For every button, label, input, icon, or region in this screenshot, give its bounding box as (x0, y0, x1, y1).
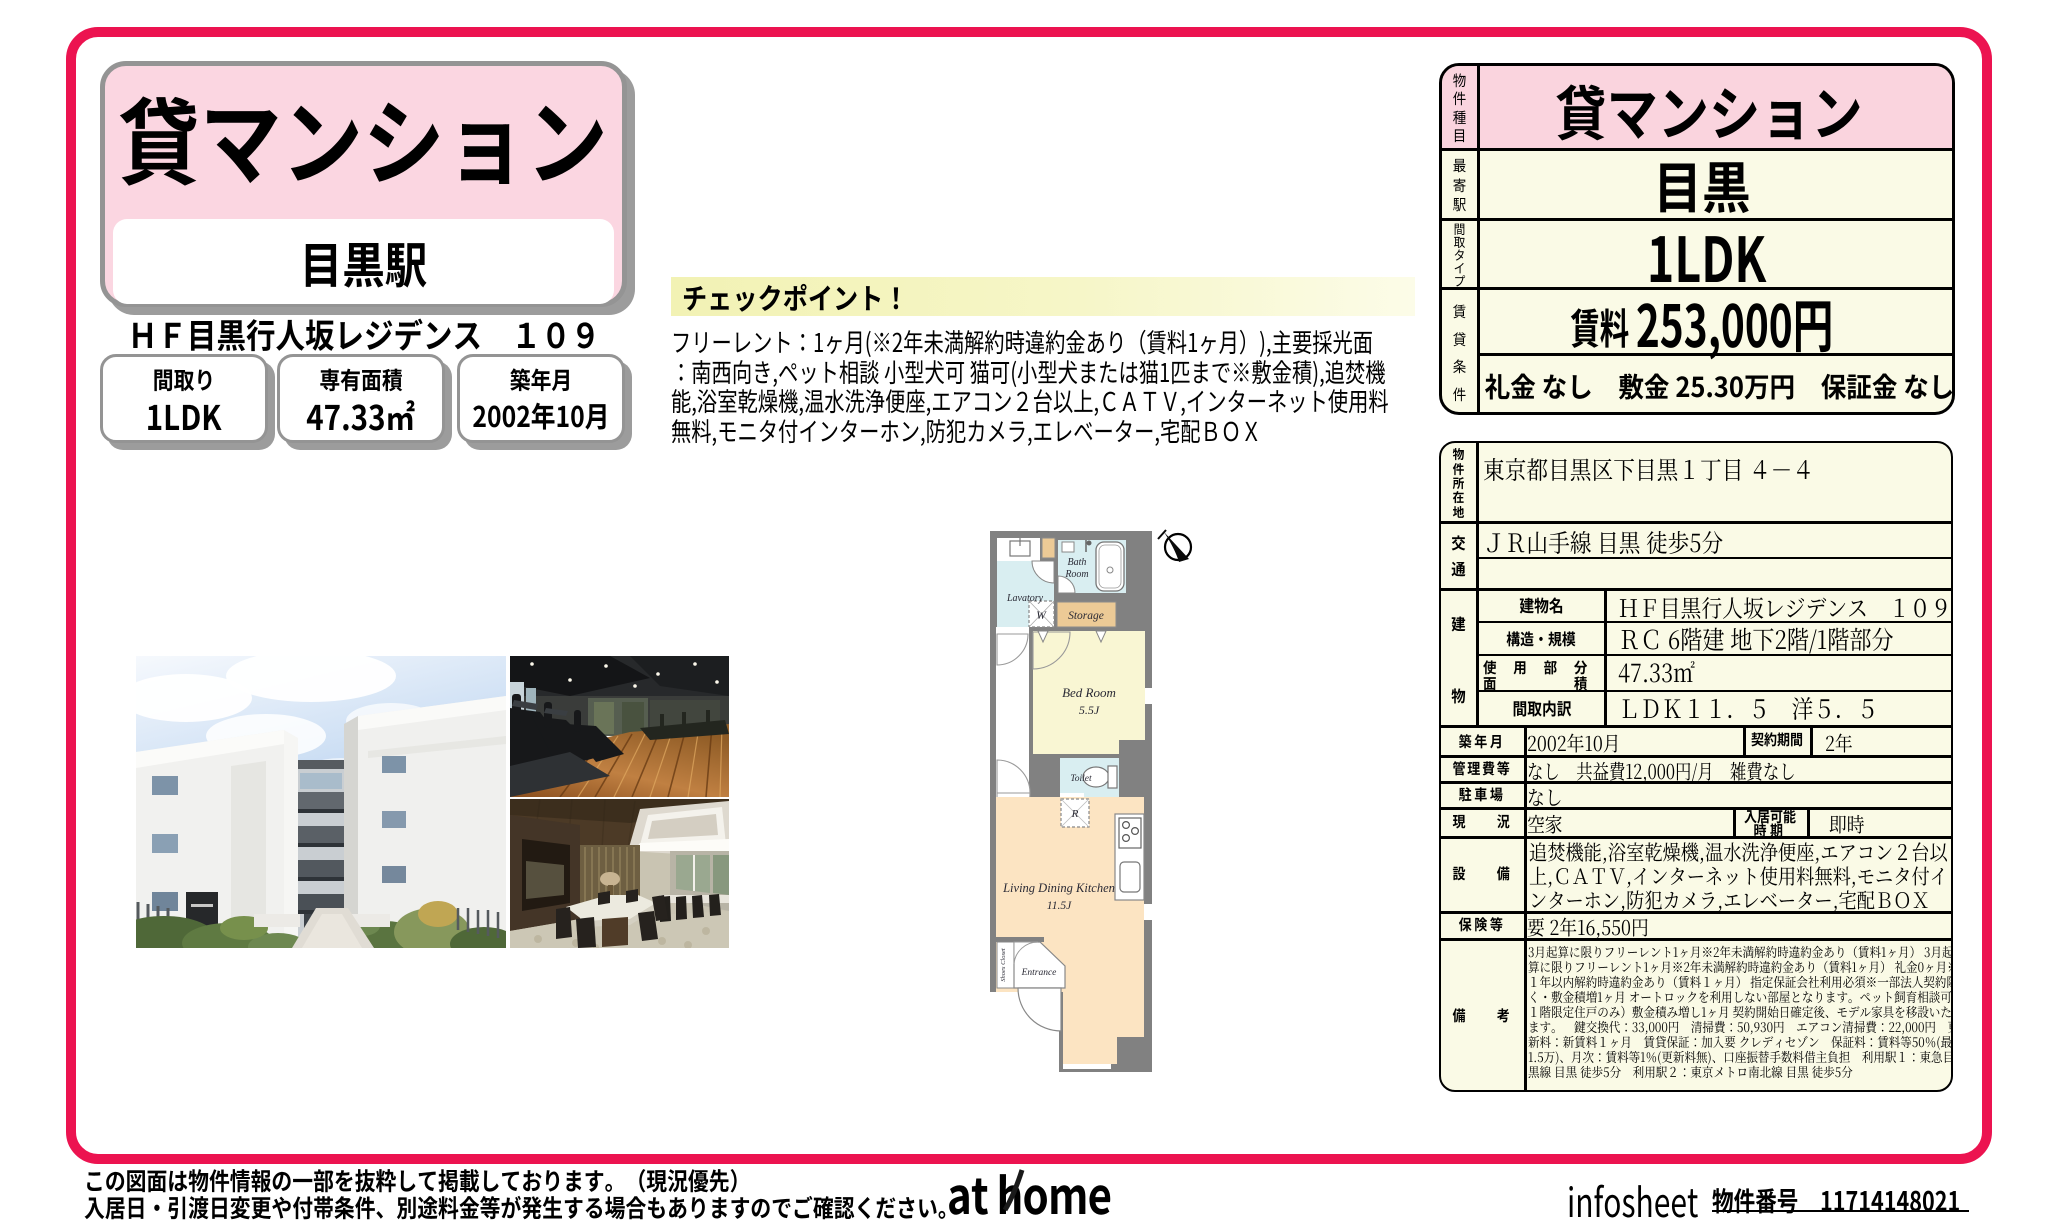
svg-text:Bed Room: Bed Room (1062, 685, 1116, 700)
svg-text:Entrance: Entrance (1021, 968, 1057, 978)
svg-text:Shoes Closet: Shoes Closet (1000, 948, 1007, 982)
svg-text:Toilet: Toilet (1070, 774, 1092, 784)
svg-text:W: W (1036, 610, 1047, 622)
svg-text:Living Dining Kitchen: Living Dining Kitchen (1002, 881, 1115, 895)
svg-text:Room: Room (1064, 569, 1088, 580)
svg-text:Storage: Storage (1068, 610, 1104, 622)
svg-text:Bath: Bath (1068, 557, 1087, 568)
svg-text:5.5J: 5.5J (1079, 703, 1100, 717)
svg-text:R: R (1071, 808, 1079, 820)
svg-text:11.5J: 11.5J (1047, 900, 1072, 912)
svg-text:Lavatory: Lavatory (1006, 593, 1044, 604)
